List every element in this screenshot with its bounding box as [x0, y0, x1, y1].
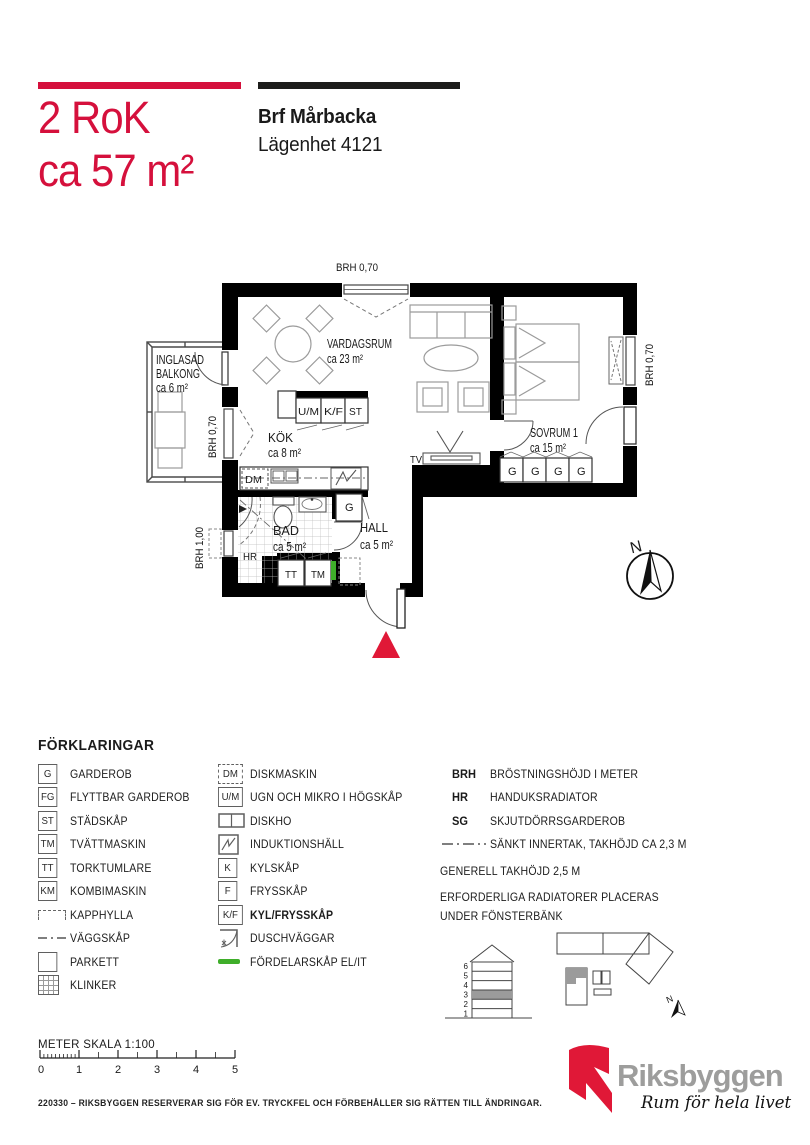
scale-5: 5: [232, 1064, 238, 1076]
red-accent-bar: [38, 82, 241, 89]
scale-0: 0: [38, 1064, 44, 1076]
legend-kylskap: KKYLSKÅP: [218, 856, 443, 880]
klinker-icon: [38, 975, 59, 995]
bedroom-area-label: ca 15 m²: [530, 441, 566, 455]
legend-kombimaskin: KMKOMBIMASKIN: [38, 880, 218, 904]
diskmaskin-icon: DM: [218, 764, 243, 784]
scale-3: 3: [154, 1064, 160, 1076]
bath-area-label: ca 5 m²: [273, 540, 306, 554]
living-window: [342, 281, 410, 317]
duschvaggar-icon: [218, 928, 239, 949]
bath-window: [209, 529, 239, 558]
floor-plan-page: 2 RoKca 57 m² Brf Mårbacka Lägenhet 4121: [0, 0, 810, 1145]
bedroom-label: SOVRUM 1: [530, 426, 578, 440]
floor-5: 5: [464, 972, 469, 981]
bedroom-right-door: [586, 405, 638, 446]
balcony-label-2: BALKONG: [156, 367, 200, 381]
title-line1: 2 RoK: [38, 92, 150, 143]
diskho-icon: [218, 813, 245, 828]
tm-label: TM: [311, 569, 325, 581]
location-diagrams: 6 5 4 3 2 1 N: [440, 925, 700, 1030]
kapphylla-icon: [38, 910, 66, 920]
g1-label: G: [508, 466, 517, 478]
armchairs: [417, 382, 489, 412]
livingroom-label: VARDAGSRUM: [327, 337, 392, 351]
bath-door: [331, 519, 362, 552]
distribution-cabinet-icon: [331, 561, 336, 580]
legend-sankt-innertak: SÄNKT INNERTAK, TAKHÖJD CA 2,3 M: [440, 833, 780, 857]
bath-label: BAD: [273, 524, 299, 538]
legend-frysskap: FFRYSSKÅP: [218, 880, 443, 904]
project-name: Brf Mårbacka: [258, 103, 382, 131]
tt-label: TT: [285, 569, 298, 581]
legend-sg: SGSKJUTDÖRRSGARDEROB: [440, 809, 780, 833]
building-elevation: [445, 945, 532, 1018]
scale-bar: METER SKALA 1:100 0 1 2 3 4 5: [34, 1036, 249, 1081]
site-plan: [557, 933, 673, 1005]
legend-diskmaskin: DMDISKMASKIN: [218, 762, 443, 786]
tv-bench: [423, 431, 480, 464]
kombimaskin-icon: KM: [38, 881, 57, 901]
floor-6: 6: [464, 962, 469, 971]
kyl-frysskap-icon: K/F: [218, 905, 243, 925]
legend-column-1: GGARDEROB FGFLYTTBAR GARDEROB STSTÄDSKÅP…: [38, 762, 218, 997]
scale-numbers: 0 1 2 3 4 5: [38, 1064, 238, 1076]
flyttbar-garderob-icon: FG: [38, 787, 57, 807]
hall-dashed-cabinet: [339, 558, 360, 585]
floor-1: 1: [464, 1010, 469, 1019]
legend-fordelarskap: FÖRDELARSKÅP EL/IT: [218, 950, 443, 974]
footer-disclaimer: 220330 – RIKSBYGGEN RESERVERAR SIG FÖR E…: [38, 1098, 542, 1108]
black-accent-bar: [258, 82, 460, 89]
kf-label: K/F: [324, 406, 343, 418]
scale-ruler: [40, 1050, 235, 1058]
floor-plan: N BRH 0,70 BRH 0,70 BRH 0,70 BRH 1,00 IN…: [130, 250, 695, 670]
kitchen-window: [221, 407, 254, 460]
riksbyggen-tagline: Rum för hela livet: [640, 1093, 792, 1112]
mini-north-icon: N: [665, 993, 685, 1018]
legend-garderob: GGARDEROB: [38, 762, 218, 786]
legend-hr: HRHANDUKSRADIATOR: [440, 786, 780, 810]
legend-parkett: PARKETT: [38, 950, 218, 974]
balcony-label-1: INGLASAD: [156, 353, 204, 367]
tvattmaskin-icon: TM: [38, 834, 57, 854]
stadskap-icon: ST: [38, 811, 57, 831]
coffee-table: [424, 345, 478, 371]
floor-numbers: 6 5 4 3 2 1: [464, 962, 469, 1019]
g3-label: G: [554, 466, 563, 478]
bed: [502, 306, 579, 414]
legend-duschvaggar: DUSCHVÄGGAR: [218, 927, 443, 951]
hall-label: HALL: [360, 521, 388, 535]
tv-label: TV: [410, 454, 422, 466]
brh-top-label: BRH 0,70: [336, 262, 378, 274]
dm-label: DM: [245, 474, 262, 486]
note-takhojd: GENERELL TAKHÖJD 2,5 M: [440, 864, 580, 878]
riksbyggen-logo: Riksbyggen Rum för hela livet: [555, 1040, 800, 1125]
legend-column-3: BRHBRÖSTNINGSHÖJD I METER HRHANDUKSRADIA…: [440, 762, 780, 856]
legend-klinker: KLINKER: [38, 974, 218, 998]
balcony-area-label: ca 6 m²: [156, 381, 188, 395]
project-block: Brf Mårbacka Lägenhet 4121: [258, 103, 382, 159]
scale-4: 4: [193, 1064, 199, 1076]
legend-vaggskap: VÄGGSKÅP: [38, 927, 218, 951]
hr-label: HR: [243, 551, 257, 563]
brh-balcony-label: BRH 0,70: [207, 416, 219, 458]
compass-north-label: N: [629, 538, 644, 557]
bedroom-window: [609, 335, 638, 387]
st-label: ST: [349, 406, 363, 418]
ugn-mikro-icon: U/M: [218, 787, 243, 807]
g2-label: G: [531, 466, 540, 478]
legend-kapphylla: KAPPHYLLA: [38, 903, 218, 927]
kitchen-area-label: ca 8 m²: [268, 446, 301, 460]
bedroom-door: [489, 420, 533, 451]
highlighted-building: [566, 968, 587, 984]
legend-title: FÖRKLARINGAR: [38, 738, 154, 754]
legend-diskho: DISKHO: [218, 809, 443, 833]
riksbyggen-flag-icon: [569, 1045, 612, 1113]
mini-north-label: N: [665, 993, 675, 1005]
note-radiatorer: ERFORDERLIGA RADIATORER PLACERAS UNDER F…: [440, 888, 659, 925]
floor-2: 2: [464, 1000, 469, 1009]
legend-stadskap: STSTÄDSKÅP: [38, 809, 218, 833]
kitchen-label: KÖK: [268, 431, 294, 445]
g-hall-label: G: [345, 502, 354, 514]
hall-wardrobe-door: [362, 496, 369, 519]
compass-icon: N: [627, 538, 673, 599]
induktionshall-icon: [218, 834, 239, 855]
sg-abbr: SG: [452, 814, 468, 828]
legend-torktumlare: TTTORKTUMLARE: [38, 856, 218, 880]
hr-abbr: HR: [452, 790, 468, 804]
legend-flyttbar-garderob: FGFLYTTBAR GARDEROB: [38, 786, 218, 810]
balcony-furniture: [155, 392, 185, 468]
floor-3: 3: [464, 991, 469, 1000]
scale-1: 1: [76, 1064, 82, 1076]
dining-set: [253, 305, 333, 384]
page-title: 2 RoKca 57 m²: [38, 92, 193, 197]
floor-4: 4: [464, 981, 469, 990]
entrance-marker-icon: [372, 631, 400, 658]
livingroom-area-label: ca 23 m²: [327, 352, 363, 366]
garderob-icon: G: [38, 764, 57, 784]
legend-ugn-mikro: U/MUGN OCH MIKRO I HÖGSKÅP: [218, 786, 443, 810]
g4-label: G: [577, 466, 586, 478]
legend-kyl-frysskap: K/FKYL/FRYSSKÅP: [218, 903, 443, 927]
hall-area-label: ca 5 m²: [360, 538, 393, 552]
legend-induktionshall: INDUKTIONSHÄLL: [218, 833, 443, 857]
frysskap-icon: F: [218, 881, 237, 901]
title-line2: ca 57 m²: [38, 145, 193, 196]
um-label: U/M: [298, 406, 319, 418]
scale-2: 2: [115, 1064, 121, 1076]
brh-left-label: BRH 1,00: [194, 527, 206, 569]
sankt-innertak-icon: [442, 841, 486, 847]
legend-column-2: DMDISKMASKIN U/MUGN OCH MIKRO I HÖGSKÅP …: [218, 762, 443, 974]
legend-tvattmaskin: TMTVÄTTMASKIN: [38, 833, 218, 857]
scale-label: METER SKALA 1:100: [38, 1039, 155, 1051]
apartment-number: Lägenhet 4121: [258, 131, 382, 159]
fordelarskap-icon: [218, 959, 240, 964]
sofa: [410, 305, 492, 338]
parkett-icon: [38, 952, 57, 972]
entrance-door: [366, 589, 405, 628]
highlighted-floor: [472, 990, 512, 999]
kylskap-icon: K: [218, 858, 237, 878]
brh-right-label: BRH 0,70: [644, 344, 656, 386]
riksbyggen-wordmark: Riksbyggen: [617, 1058, 783, 1093]
legend-brh: BRHBRÖSTNINGSHÖJD I METER: [440, 762, 780, 786]
torktumlare-icon: TT: [38, 858, 57, 878]
brh-abbr: BRH: [452, 767, 476, 781]
vaggskap-icon: [38, 935, 66, 941]
